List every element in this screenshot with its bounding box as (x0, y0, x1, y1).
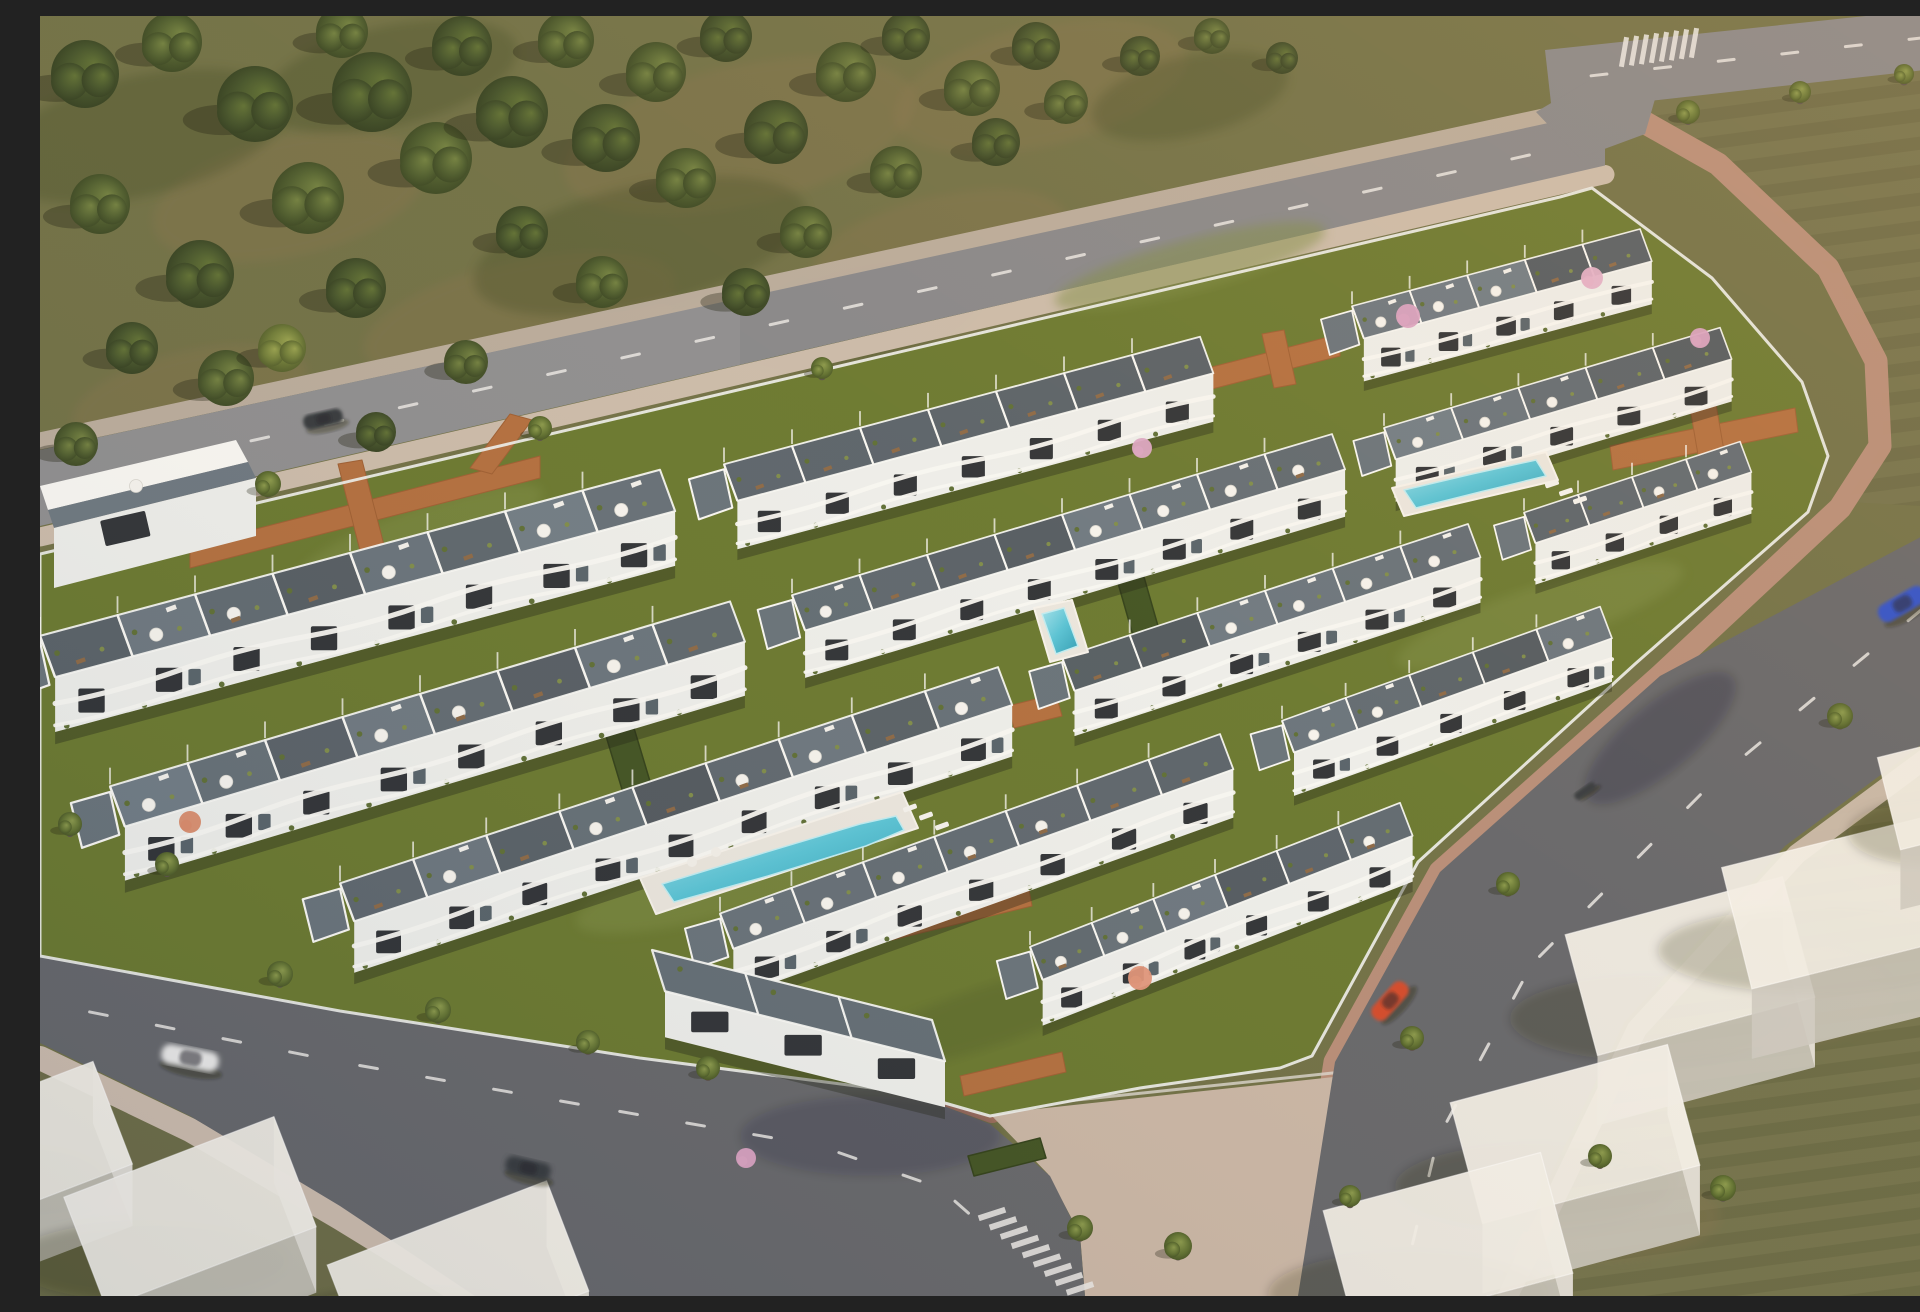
color-grade-overlay (40, 16, 1920, 1296)
aerial-render-canvas (40, 16, 1920, 1296)
aerial-render-image (40, 16, 1920, 1296)
warm-light-overlay (40, 16, 1920, 1296)
